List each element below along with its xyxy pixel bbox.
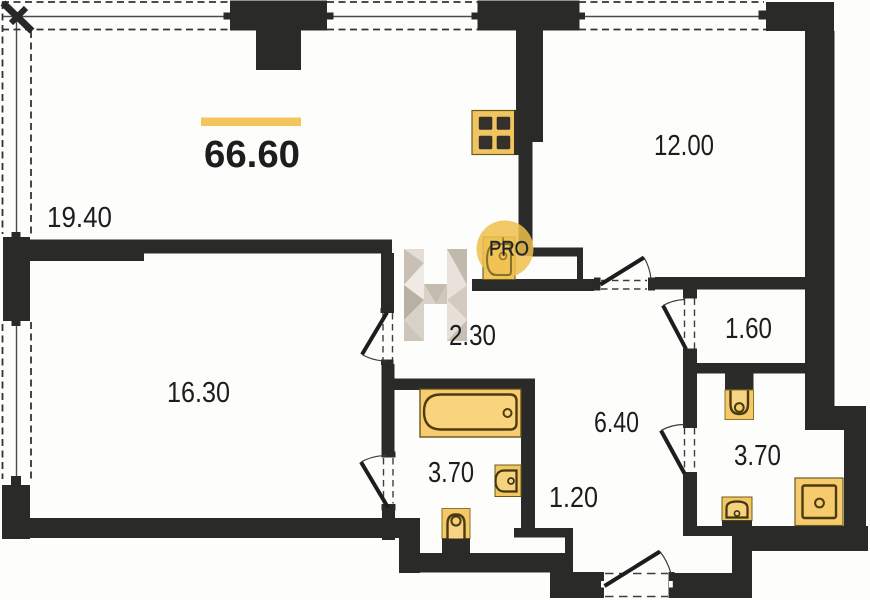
svg-text:1.20: 1.20 xyxy=(549,482,598,514)
svg-text:1.60: 1.60 xyxy=(725,313,772,345)
svg-text:6.40: 6.40 xyxy=(594,407,639,439)
svg-text:12.00: 12.00 xyxy=(654,130,714,162)
svg-text:3.70: 3.70 xyxy=(428,457,474,489)
svg-text:16.30: 16.30 xyxy=(167,377,230,409)
svg-text:3.70: 3.70 xyxy=(734,440,781,472)
svg-text:2.30: 2.30 xyxy=(449,320,496,352)
svg-text:66.60: 66.60 xyxy=(204,134,300,176)
svg-text:PRO: PRO xyxy=(489,238,529,261)
svg-text:19.40: 19.40 xyxy=(47,202,112,234)
